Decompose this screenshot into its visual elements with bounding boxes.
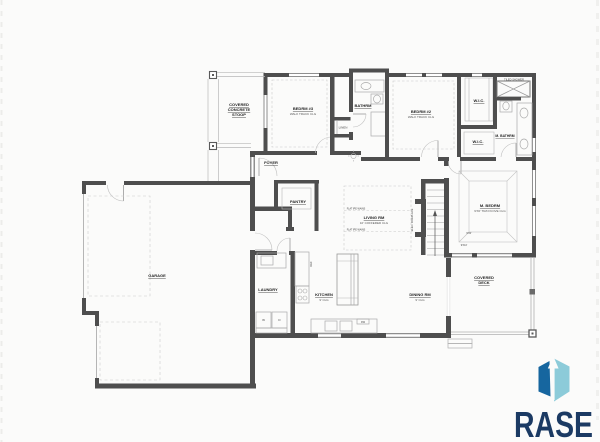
svg-text:BATHRM: BATHRM: [354, 103, 372, 108]
svg-text:FLAT IPE WAINS: FLAT IPE WAINS: [347, 208, 366, 211]
svg-text:REF: REF: [309, 261, 313, 267]
svg-text:GARAGE: GARAGE: [148, 273, 166, 278]
svg-text:9' CLG: 9' CLG: [319, 298, 329, 302]
svg-text:PANTRY: PANTRY: [290, 199, 306, 204]
svg-text:DINING RM: DINING RM: [409, 292, 431, 297]
svg-text:9' CLG: 9' CLG: [415, 298, 425, 302]
svg-text:WALK TRACK CLG: WALK TRACK CLG: [408, 115, 435, 119]
svg-text:W.I.C.: W.I.C.: [473, 139, 484, 144]
svg-text:DECK: DECK: [478, 280, 489, 285]
svg-text:TILED SHOWER: TILED SHOWER: [504, 78, 524, 82]
svg-text:LINEN: LINEN: [339, 126, 348, 130]
svg-text:WALK TRACK CLG: WALK TRACK CLG: [290, 112, 317, 116]
svg-text:W: W: [262, 318, 265, 322]
svg-text:KITCHEN: KITCHEN: [315, 292, 333, 297]
svg-text:9'X10': 9'X10': [461, 244, 468, 247]
svg-text:9'X0': 9'X0': [466, 232, 472, 235]
svg-text:BEDRM #3: BEDRM #3: [293, 106, 314, 111]
svg-text:FOYER: FOYER: [264, 160, 278, 165]
svg-text:FLAT IPE WAINS: FLAT IPE WAINS: [347, 229, 366, 232]
svg-text:ELEC. FIREPLACE: ELEC. FIREPLACE: [410, 208, 414, 231]
svg-text:LIVING RM: LIVING RM: [364, 215, 385, 220]
svg-text:STOOP: STOOP: [232, 112, 246, 117]
svg-text:9'X0' TRAY/COVE CLG: 9'X0' TRAY/COVE CLG: [474, 209, 506, 213]
svg-text:10' COFFERED CLG: 10' COFFERED CLG: [360, 221, 389, 225]
svg-text:W.I.C.: W.I.C.: [474, 98, 485, 103]
svg-text:M. BATHRM: M. BATHRM: [495, 134, 514, 138]
svg-text:RASE: RASE: [514, 404, 593, 442]
svg-text:LAUNDRY: LAUNDRY: [258, 287, 278, 292]
svg-text:BEDRM #2: BEDRM #2: [411, 109, 432, 114]
svg-text:M. BEDRM: M. BEDRM: [480, 203, 501, 208]
